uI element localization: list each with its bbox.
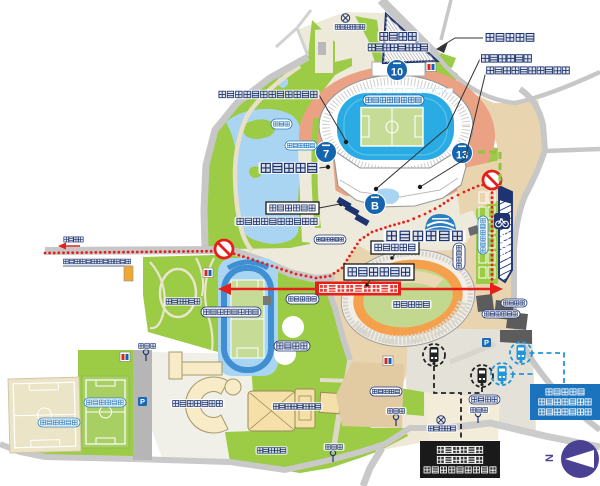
svg-text:7: 7: [323, 149, 329, 161]
svg-text:P: P: [140, 397, 145, 406]
svg-text:10: 10: [391, 67, 403, 79]
svg-text:P: P: [484, 338, 489, 347]
svg-text:B: B: [371, 201, 379, 213]
svg-text:N: N: [544, 454, 556, 462]
